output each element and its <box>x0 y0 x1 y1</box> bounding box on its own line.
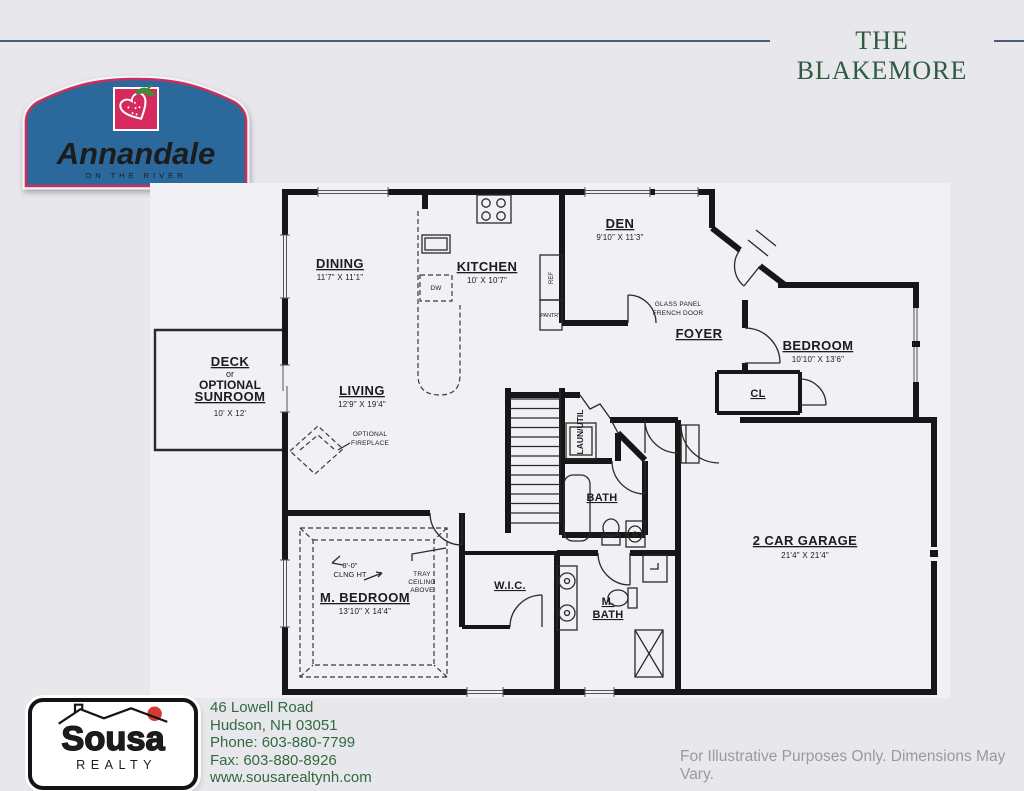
refrigerator-label: REF <box>549 272 555 284</box>
bedroom-label: BEDROOM <box>783 338 854 353</box>
deck-dims: 10' X 12' <box>214 409 247 418</box>
annandale-logo: Annandale ON THE RIVER <box>22 76 250 190</box>
fax: Fax: 603-880-8926 <box>210 752 372 770</box>
bath-label: BATH <box>587 492 618 504</box>
master-bath-line2: BATH <box>593 609 624 621</box>
fireplace-note-1: OPTIONAL <box>353 431 388 438</box>
deck-line4: SUNROOM <box>195 389 266 404</box>
community-tagline: ON THE RIVER <box>85 171 186 180</box>
living-dims: 12'9" X 19'4" <box>338 400 386 409</box>
address-line1: 46 Lowell Road <box>210 699 372 717</box>
ceiling-height-label: CLNG HT <box>334 570 367 579</box>
laundry-label: LAUN/UTIL <box>575 410 585 455</box>
plan-title: THE BLAKEMORE <box>770 26 994 86</box>
realtor-type: REALTY <box>76 758 157 772</box>
phone: Phone: 603-880-7799 <box>210 734 372 752</box>
master-bath-line1: M. <box>602 596 615 608</box>
kitchen-dims: 10' X 10'7" <box>467 276 507 285</box>
flyer-page: THE BLAKEMORE Annandale ON THE RIVER <box>0 0 1024 791</box>
ceiling-height: 8'-0" <box>343 561 358 570</box>
website: www.sousarealtynh.com <box>210 769 372 787</box>
realtor-name: Sousa <box>61 720 165 758</box>
floor-plan: DINING 11'7" X 11'1" KITCHEN 10' X 10'7"… <box>150 183 950 698</box>
sousa-logo: Sousa REALTY <box>28 698 198 790</box>
dining-dims: 11'7" X 11'1" <box>317 273 364 282</box>
master-bedroom-dims: 13'10" X 14'4" <box>339 607 391 616</box>
master-bedroom-label: M. BEDROOM <box>320 590 410 605</box>
garage-label: 2 CAR GARAGE <box>753 533 857 548</box>
foyer-label: FOYER <box>676 326 723 341</box>
tray-note-1: TRAY <box>413 571 431 578</box>
contact-block: 46 Lowell Road Hudson, NH 03051 Phone: 6… <box>210 699 372 787</box>
dining-label: DINING <box>316 256 364 271</box>
den-dims: 9'10" X 11'3" <box>596 233 643 242</box>
disclaimer: For Illustrative Purposes Only. Dimensio… <box>680 748 1014 784</box>
bedroom-dims: 10'10" X 13'6" <box>792 355 844 364</box>
den-label: DEN <box>606 216 635 231</box>
closet-label: CL <box>750 388 765 400</box>
community-name: Annandale <box>56 136 215 171</box>
dishwasher-label: DW <box>430 285 442 292</box>
tray-note-3: ABOVE <box>410 587 434 594</box>
plan-paper <box>150 183 950 698</box>
deck-line1: DECK <box>211 354 250 369</box>
living-label: LIVING <box>339 383 385 398</box>
french-door-note-1: GLASS PANEL <box>655 301 702 308</box>
wic-label: W.I.C. <box>494 580 526 592</box>
pantry-label: PANTRY <box>540 313 562 319</box>
fireplace-note-2: FIREPLACE <box>351 440 389 447</box>
kitchen-label: KITCHEN <box>457 259 518 274</box>
tray-note-2: CEILING <box>408 579 435 586</box>
french-door-note-2: FRENCH DOOR <box>653 310 704 317</box>
address-line2: Hudson, NH 03051 <box>210 717 372 735</box>
garage-dims: 21'4" X 21'4" <box>781 551 829 560</box>
